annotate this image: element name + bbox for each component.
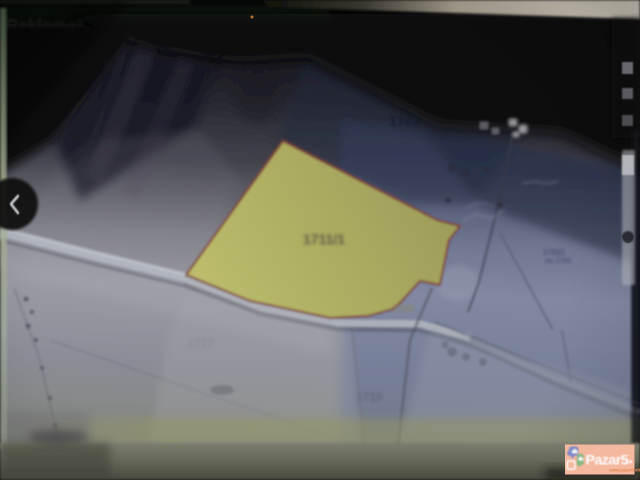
svg-text:www.pazar5.mk: www.pazar5.mk — [609, 468, 640, 473]
svg-text:.mk: .mk — [624, 460, 633, 466]
svg-text:Pazar5: Pazar5 — [586, 452, 629, 468]
